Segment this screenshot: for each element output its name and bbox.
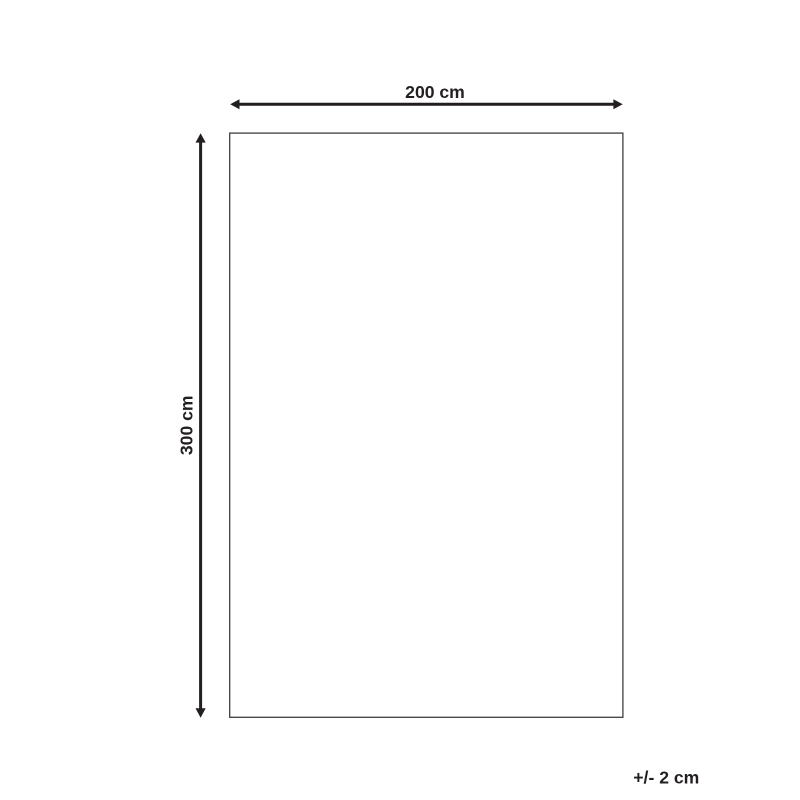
svg-text:200 cm: 200 cm [405,82,465,102]
svg-text:300 cm: 300 cm [177,395,197,455]
svg-text:+/- 2 cm: +/- 2 cm [633,767,699,787]
